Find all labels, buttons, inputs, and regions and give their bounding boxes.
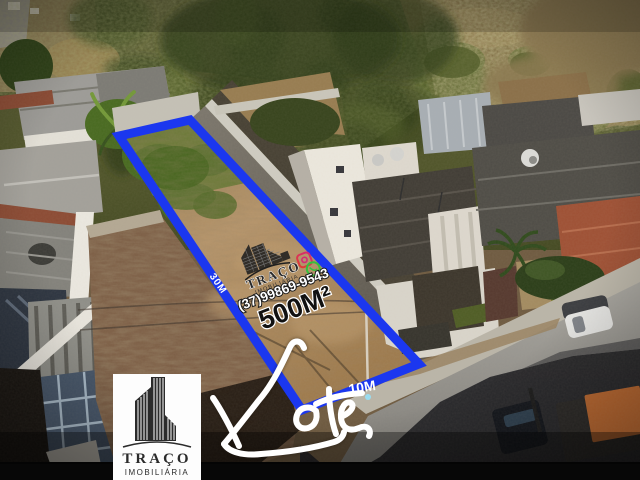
svg-text:TRAÇO: TRAÇO (122, 451, 191, 467)
svg-text:IMOBILIÁRIA: IMOBILIÁRIA (125, 468, 190, 477)
